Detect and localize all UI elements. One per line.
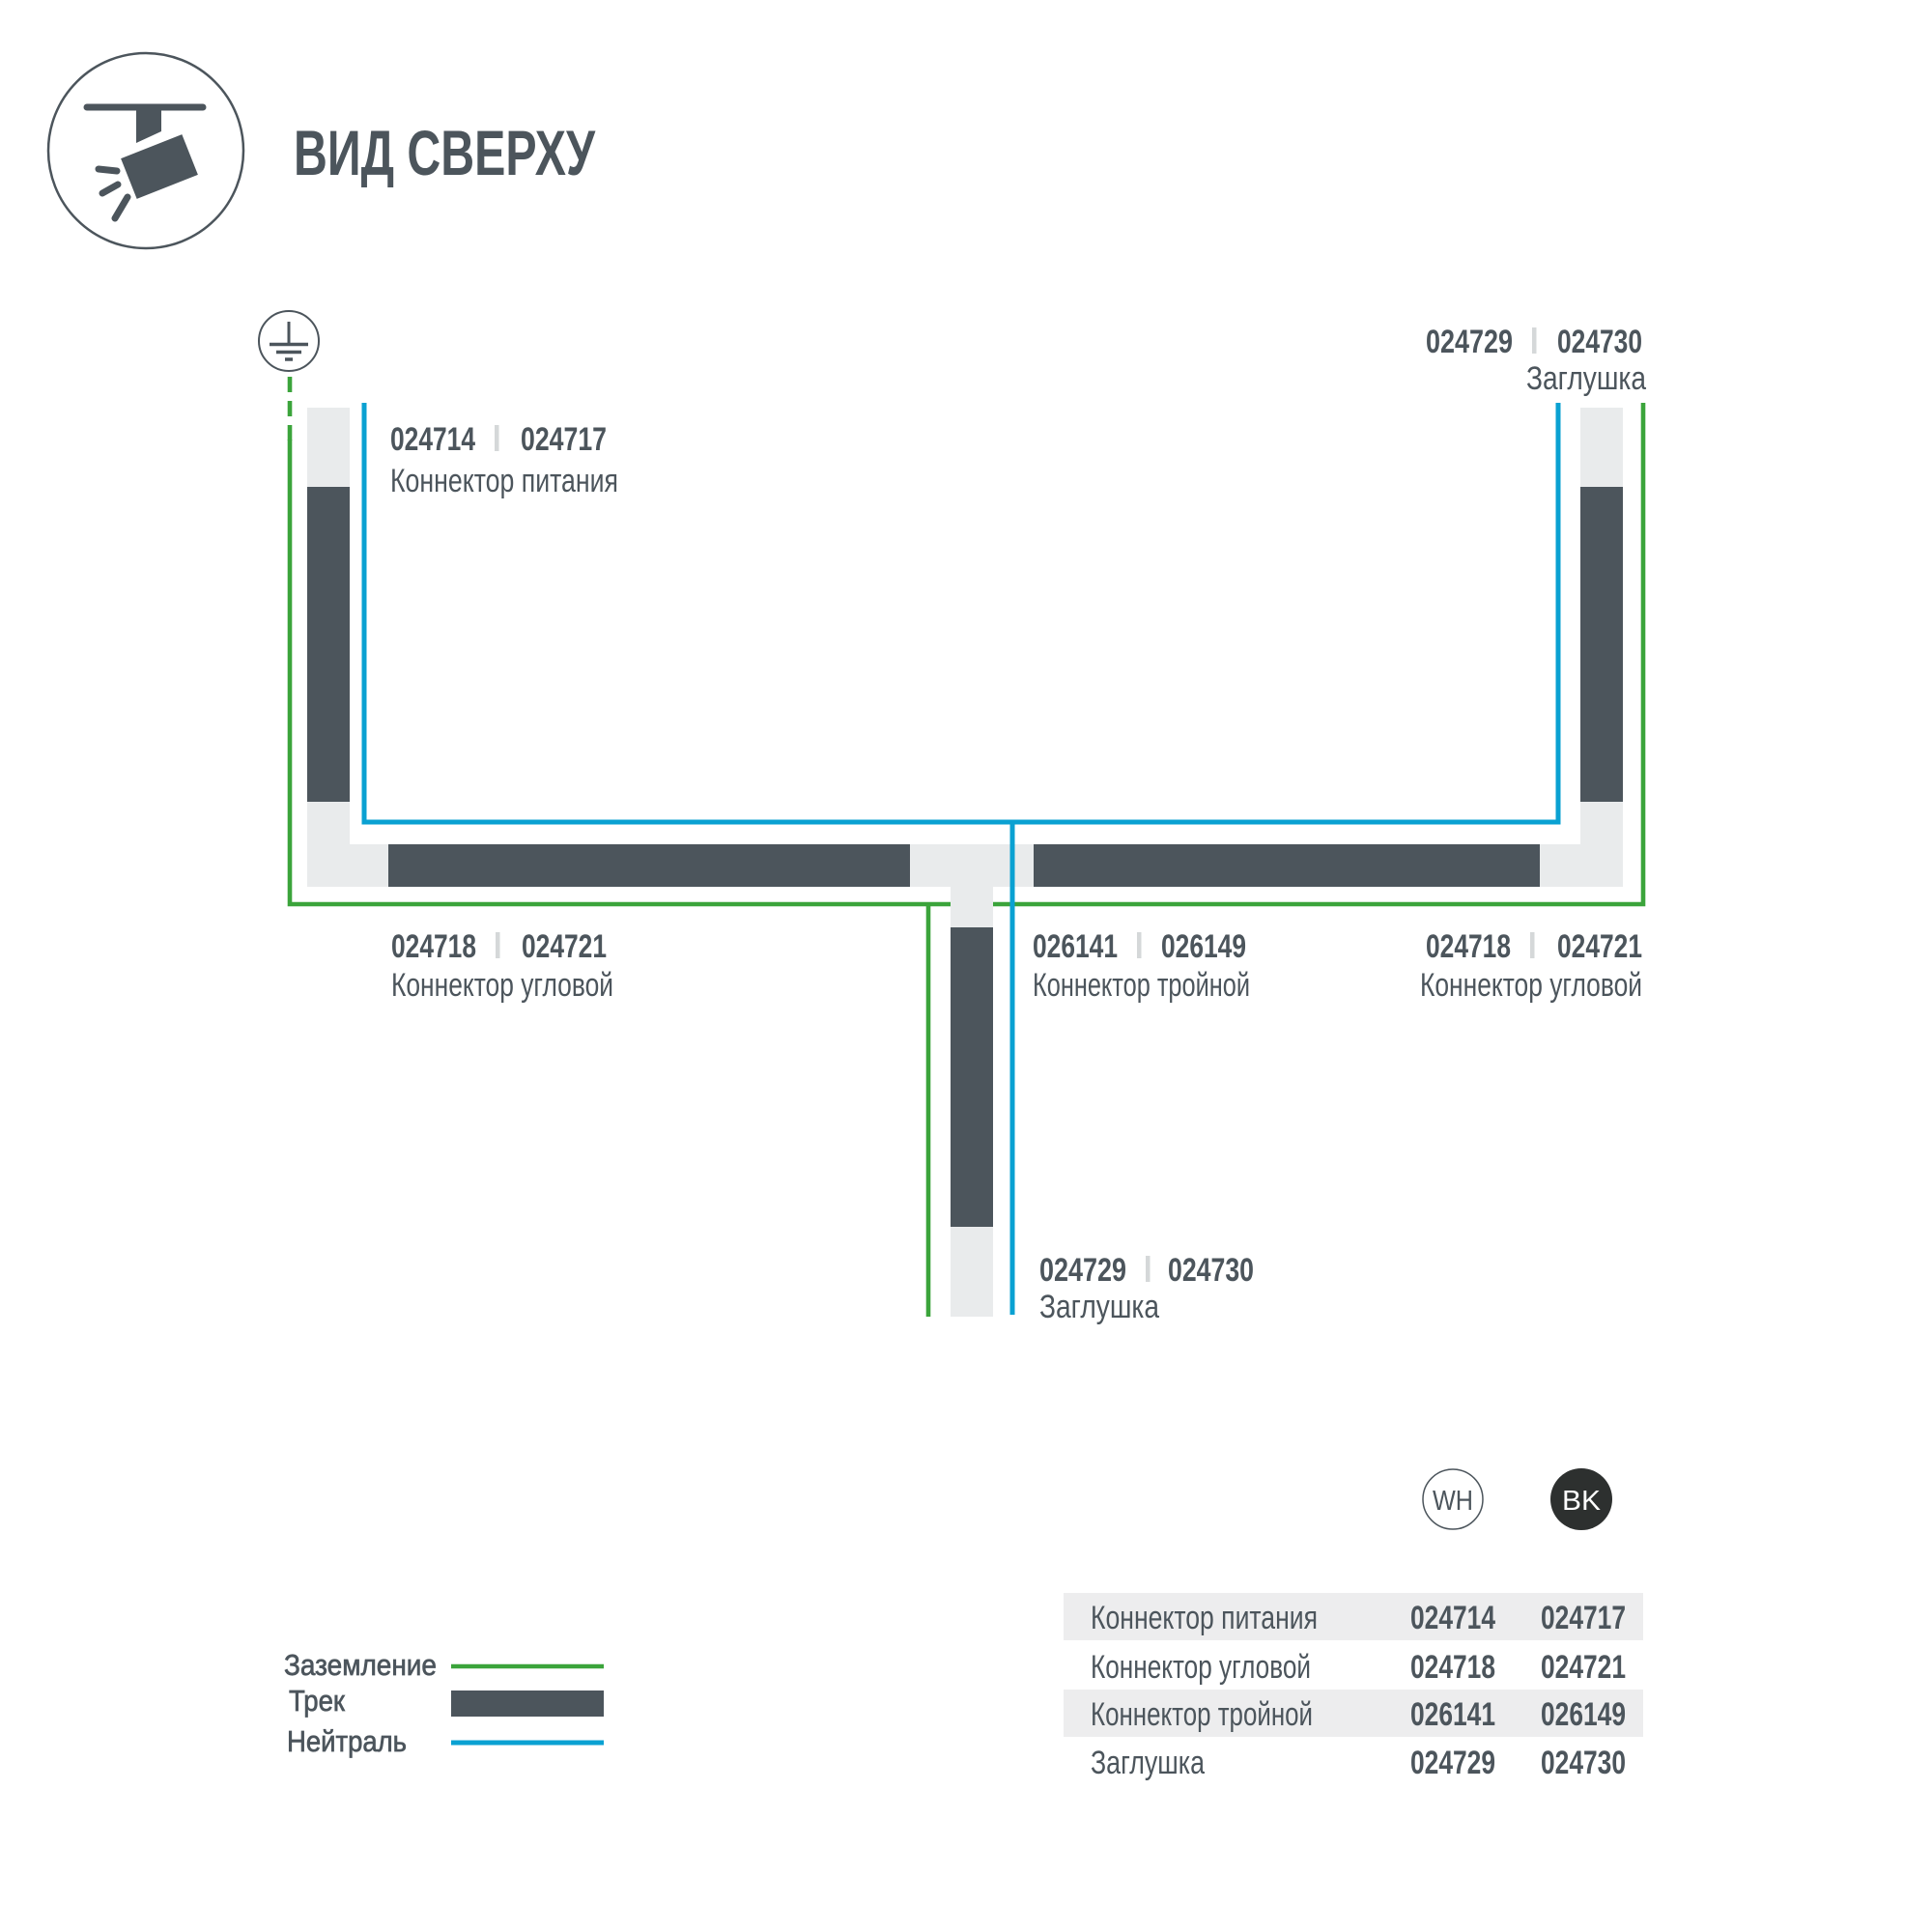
- svg-text:Коннектор тройной: Коннектор тройной: [1033, 967, 1250, 1004]
- svg-text:Коннектор угловой: Коннектор угловой: [391, 967, 613, 1004]
- svg-text:Коннектор тройной: Коннектор тройной: [1091, 1696, 1313, 1733]
- svg-text:024714: 024714: [1410, 1600, 1495, 1636]
- svg-text:Коннектор питания: Коннектор питания: [390, 463, 618, 499]
- svg-text:024730: 024730: [1168, 1252, 1254, 1289]
- svg-text:024718: 024718: [391, 928, 476, 965]
- svg-text:026149: 026149: [1161, 928, 1246, 965]
- svg-text:Заземление: Заземление: [284, 1648, 437, 1682]
- svg-text:Заглушка: Заглушка: [1091, 1745, 1205, 1781]
- svg-text:024718: 024718: [1410, 1649, 1495, 1686]
- svg-text:Коннектор угловой: Коннектор угловой: [1420, 967, 1642, 1004]
- svg-text:Заглушка: Заглушка: [1526, 360, 1646, 397]
- svg-text:024729: 024729: [1410, 1745, 1495, 1781]
- svg-text:Нейтраль: Нейтраль: [287, 1724, 407, 1758]
- svg-text:024717: 024717: [1541, 1600, 1626, 1636]
- svg-text:024729: 024729: [1039, 1252, 1126, 1289]
- svg-text:Коннектор угловой: Коннектор угловой: [1091, 1649, 1311, 1686]
- svg-text:024730: 024730: [1541, 1745, 1626, 1781]
- svg-text:BK: BK: [1562, 1486, 1602, 1517]
- svg-text:024721: 024721: [1557, 928, 1642, 965]
- svg-text:024729: 024729: [1426, 324, 1513, 360]
- svg-text:024730: 024730: [1557, 324, 1642, 360]
- svg-text:ВИД СВЕРХУ: ВИД СВЕРХУ: [294, 117, 596, 188]
- svg-text:Заглушка: Заглушка: [1039, 1289, 1159, 1325]
- svg-text:024721: 024721: [1541, 1649, 1626, 1686]
- svg-text:Трек: Трек: [289, 1684, 345, 1718]
- svg-text:024714: 024714: [390, 421, 475, 458]
- svg-text:026149: 026149: [1541, 1696, 1626, 1733]
- svg-text:WH: WH: [1433, 1486, 1473, 1517]
- svg-text:026141: 026141: [1033, 928, 1118, 965]
- svg-text:024718: 024718: [1426, 928, 1511, 965]
- svg-text:024717: 024717: [521, 421, 607, 458]
- svg-text:024721: 024721: [522, 928, 607, 965]
- svg-text:026141: 026141: [1410, 1696, 1495, 1733]
- svg-text:Коннектор питания: Коннектор питания: [1091, 1600, 1318, 1636]
